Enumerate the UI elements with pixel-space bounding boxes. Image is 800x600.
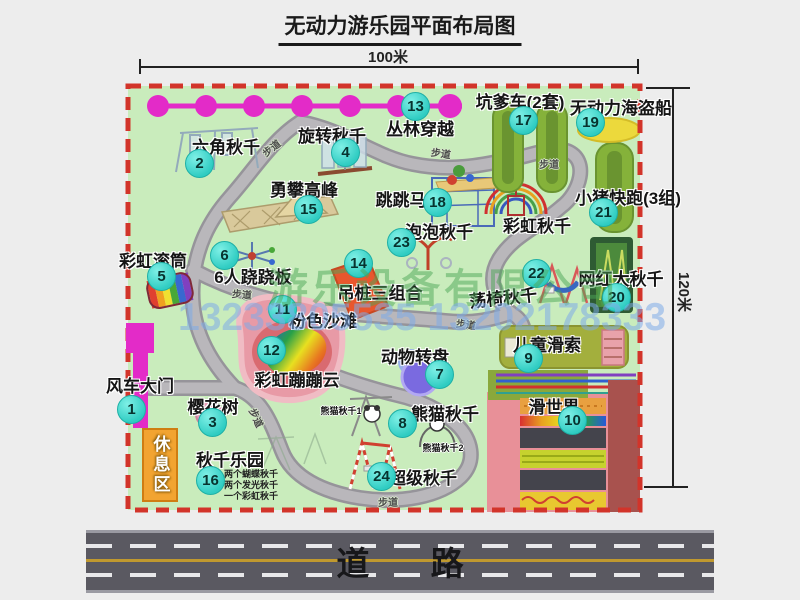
path-label-7: 步道 (378, 494, 398, 509)
label-rainbow-swing: 彩虹秋千 (503, 212, 571, 237)
rest-area-label: 休息区 (148, 435, 173, 495)
height-dim-tick-bottom (644, 486, 688, 488)
swing-park-note-3: 一个彩虹秋千 (224, 489, 278, 502)
width-dim-tick-left (139, 59, 141, 74)
badge-5: 5 (147, 262, 176, 291)
badge-4: 4 (331, 138, 360, 167)
badge-19: 19 (576, 108, 605, 137)
badge-15: 15 (294, 195, 323, 224)
badge-24: 24 (367, 462, 396, 491)
page-title: 无动力游乐园平面布局图 (279, 10, 522, 46)
slide-world-icon (487, 370, 640, 512)
badge-23: 23 (387, 228, 416, 257)
width-dimension-label: 100米 (368, 46, 408, 67)
label-panda-swing-2: 熊猫秋千2 (422, 441, 463, 454)
width-dimension-line (140, 66, 638, 68)
path-label-2: 步道 (430, 144, 452, 162)
height-dimension-label: 120米 (674, 272, 695, 312)
watermark-phone: 13233805535 13202178333 (178, 296, 666, 340)
label-jumping-horse: 跳跳马 (376, 186, 427, 211)
badge-3: 3 (198, 408, 227, 437)
label-panda-swing: 熊猫秋千 (411, 400, 479, 425)
height-dimension-line (672, 88, 674, 488)
badge-8: 8 (388, 409, 417, 438)
badge-9: 9 (514, 344, 543, 373)
badge-1: 1 (117, 395, 146, 424)
rest-area: 休息区 (142, 428, 178, 502)
park-layout-map: 无动力游乐园平面布局图 100米 120米 休息区 风车大门 六角秋千 樱花树 … (0, 0, 800, 600)
path-label-3: 步道 (539, 156, 559, 171)
height-dim-tick-top (646, 87, 690, 89)
label-super-swing: 超级秋千 (389, 464, 457, 489)
label-rainbow-cloud: 彩虹蹦蹦云 (255, 366, 340, 391)
badge-13: 13 (401, 92, 430, 121)
badge-21: 21 (589, 198, 618, 227)
badge-7: 7 (425, 360, 454, 389)
badge-17: 17 (509, 106, 538, 135)
badge-2: 2 (185, 149, 214, 178)
badge-18: 18 (423, 188, 452, 217)
road-label: 道 路 (310, 537, 489, 585)
road: 道 路 (86, 530, 714, 593)
badge-16: 16 (196, 466, 225, 495)
label-windmill-gate: 风车大门 (106, 372, 174, 397)
width-dim-tick-right (637, 59, 639, 74)
badge-6: 6 (210, 241, 239, 270)
badge-12: 12 (257, 336, 286, 365)
badge-10: 10 (558, 406, 587, 435)
label-panda-swing-1: 熊猫秋千1 (320, 404, 361, 417)
